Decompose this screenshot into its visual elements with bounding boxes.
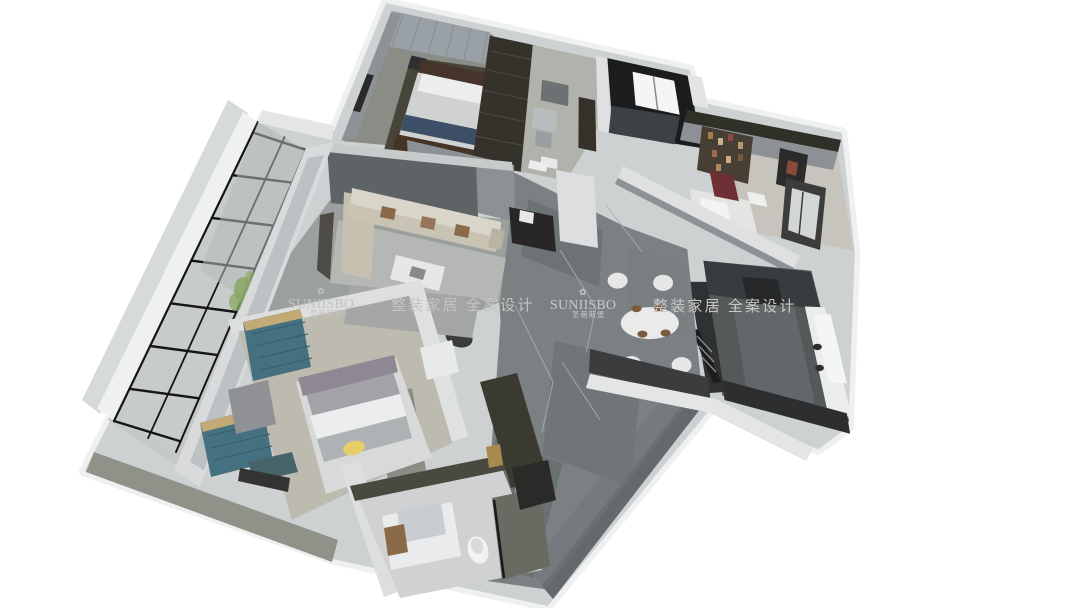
svg-text:✿: ✿ <box>317 286 325 296</box>
svg-text:整装家居 全案设计: 整装家居 全案设计 <box>653 297 797 315</box>
svg-text:圣蓓斯堡: 圣蓓斯堡 <box>572 309 605 319</box>
svg-text:✿: ✿ <box>579 287 587 297</box>
svg-text:整装家居 全案设计: 整装家居 全案设计 <box>391 296 535 314</box>
svg-text:圣蓓斯堡: 圣蓓斯堡 <box>310 308 343 318</box>
